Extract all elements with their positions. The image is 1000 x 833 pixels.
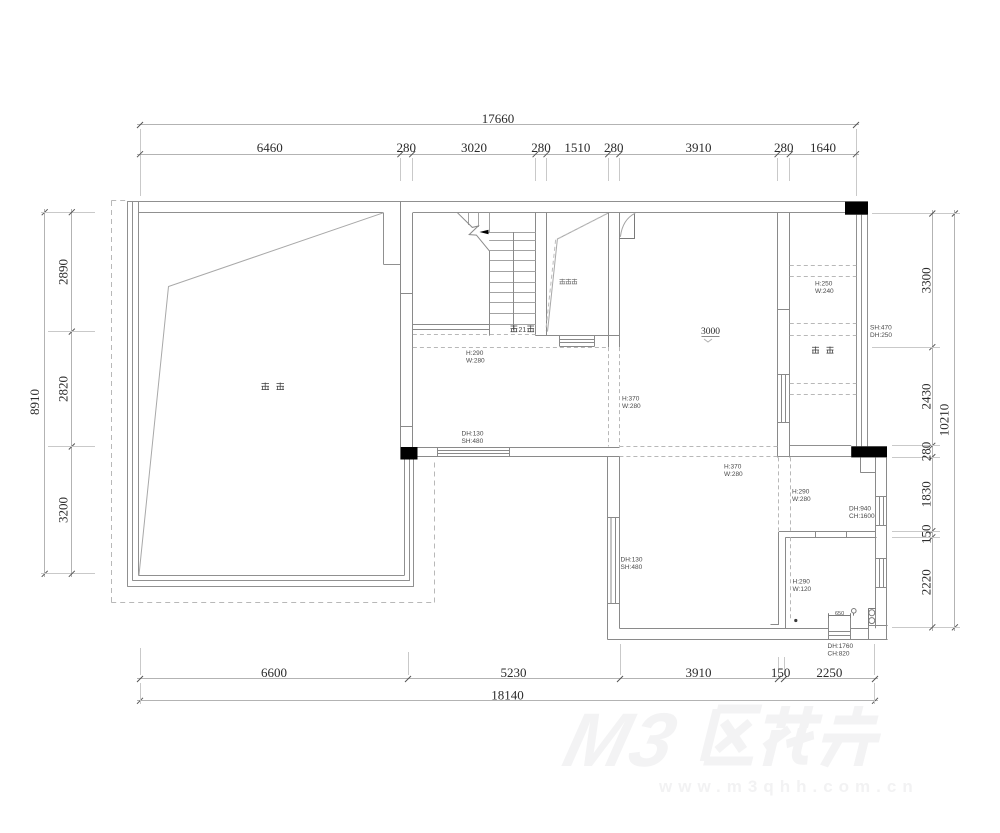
svg-text:3910: 3910 bbox=[686, 665, 712, 680]
svg-text:H:290: H:290 bbox=[793, 579, 811, 586]
svg-text:1640: 1640 bbox=[810, 140, 836, 155]
svg-text:650: 650 bbox=[835, 611, 844, 617]
svg-text:CH:1600: CH:1600 bbox=[849, 513, 875, 520]
svg-text:SH:480: SH:480 bbox=[462, 438, 484, 445]
svg-text:18140: 18140 bbox=[491, 688, 524, 703]
svg-text:8910: 8910 bbox=[27, 389, 42, 415]
svg-text:SH:470: SH:470 bbox=[870, 325, 892, 332]
svg-text:3200: 3200 bbox=[56, 497, 71, 523]
svg-text:H:250: H:250 bbox=[815, 281, 833, 288]
svg-text:H:370: H:370 bbox=[622, 396, 640, 403]
svg-text:W:280: W:280 bbox=[724, 471, 743, 478]
svg-text:H:290: H:290 bbox=[466, 350, 484, 357]
svg-text:5230: 5230 bbox=[501, 665, 527, 680]
svg-text:21: 21 bbox=[519, 327, 527, 334]
svg-text:3910: 3910 bbox=[686, 140, 712, 155]
svg-text:280: 280 bbox=[397, 140, 417, 155]
svg-text:W:280: W:280 bbox=[622, 403, 641, 410]
svg-text:DH:1760: DH:1760 bbox=[828, 643, 854, 650]
svg-text:150: 150 bbox=[919, 525, 934, 545]
svg-text:6600: 6600 bbox=[261, 665, 287, 680]
svg-text:3000: 3000 bbox=[701, 327, 720, 337]
svg-text:1830: 1830 bbox=[919, 481, 934, 507]
svg-text:2430: 2430 bbox=[919, 384, 934, 410]
svg-text:1510: 1510 bbox=[564, 140, 590, 155]
svg-text:DH:940: DH:940 bbox=[849, 506, 871, 513]
svg-text:280: 280 bbox=[604, 140, 624, 155]
svg-text:10210: 10210 bbox=[937, 404, 952, 437]
svg-text:2820: 2820 bbox=[56, 376, 71, 402]
svg-text:2250: 2250 bbox=[816, 665, 842, 680]
svg-text:W:120: W:120 bbox=[793, 586, 812, 593]
svg-text:H:370: H:370 bbox=[724, 464, 742, 471]
svg-text:H:290: H:290 bbox=[792, 489, 810, 496]
svg-text:3020: 3020 bbox=[461, 140, 487, 155]
svg-text:SH:480: SH:480 bbox=[621, 564, 643, 571]
svg-text:2890: 2890 bbox=[56, 259, 71, 285]
svg-text:280: 280 bbox=[919, 442, 934, 462]
svg-text:6460: 6460 bbox=[257, 140, 283, 155]
svg-text:M3: M3 bbox=[556, 698, 687, 783]
svg-text:DH:130: DH:130 bbox=[462, 431, 484, 438]
svg-text:DH:130: DH:130 bbox=[621, 557, 643, 564]
svg-text:17660: 17660 bbox=[482, 111, 515, 126]
svg-text:W:280: W:280 bbox=[466, 358, 485, 365]
svg-text:280: 280 bbox=[774, 140, 794, 155]
svg-text:280: 280 bbox=[531, 140, 551, 155]
svg-text:2220: 2220 bbox=[919, 569, 934, 595]
svg-text:3300: 3300 bbox=[919, 267, 934, 293]
svg-text:W:280: W:280 bbox=[792, 496, 811, 503]
svg-text:150: 150 bbox=[771, 665, 791, 680]
svg-text:W:240: W:240 bbox=[815, 288, 834, 295]
svg-text:www.m3qhh.com.cn: www.m3qhh.com.cn bbox=[658, 777, 919, 796]
svg-text:CH:820: CH:820 bbox=[828, 651, 850, 658]
svg-text:DH:250: DH:250 bbox=[870, 332, 892, 339]
